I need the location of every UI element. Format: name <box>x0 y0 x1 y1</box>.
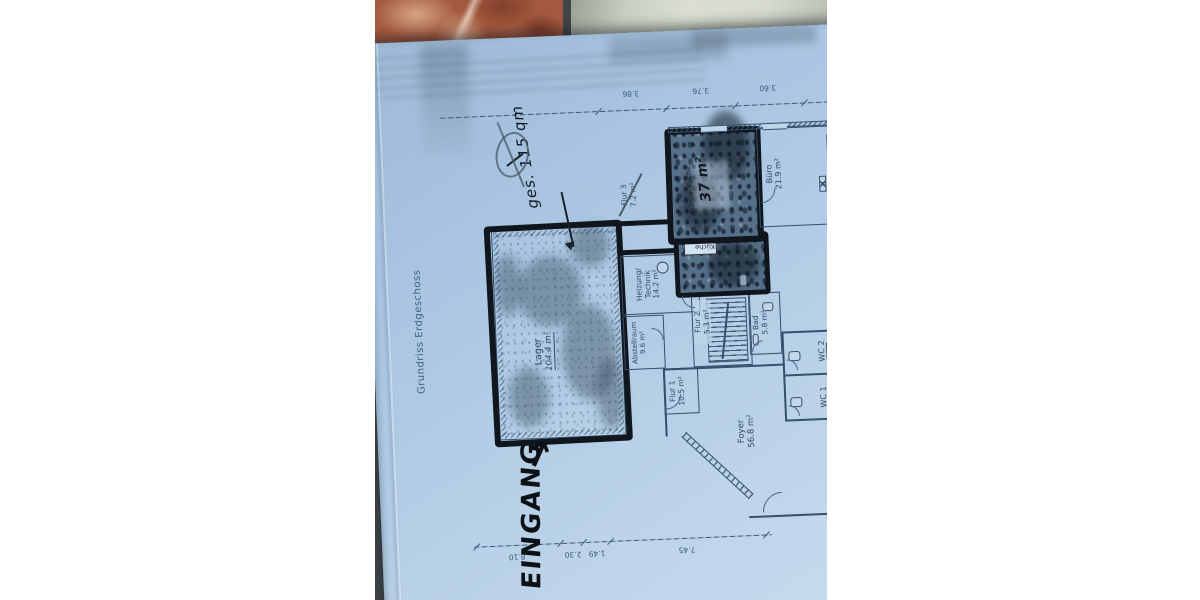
dimension-value: 3.60 <box>755 83 781 93</box>
window-symbol <box>826 134 827 156</box>
photo-of-floor-plan: Grundriss Erdgeschoss 8.10 2.30 1.49 7.4… <box>375 0 827 600</box>
radiator-symbol <box>826 343 827 359</box>
wc-top-wall <box>781 332 787 422</box>
paper-fold-edge <box>376 43 404 600</box>
wc-left-wall <box>785 417 827 421</box>
photocopy-streak <box>609 33 728 64</box>
photocopy-streak <box>691 25 817 48</box>
screenshot-canvas: Grundriss Erdgeschoss 8.10 2.30 1.49 7.4… <box>0 0 1200 600</box>
radiator-symbol <box>819 176 827 192</box>
dimension-value: 1.49 <box>584 549 610 559</box>
dimension-value: 3.76 <box>688 86 714 96</box>
dimension-value: 3.86 <box>618 89 644 99</box>
room-label-abstellraum: Abstellraum 9.6 m² <box>630 317 648 368</box>
room-area: 5.3 m² <box>702 300 712 344</box>
marker-outline-lager <box>484 220 633 448</box>
room-area: 104.4 m² <box>543 332 556 371</box>
toilet-symbol <box>762 302 773 311</box>
dimension-value: 7.45 <box>674 545 700 555</box>
floor-plan-drawing: Grundriss Erdgeschoss 8.10 2.30 1.49 7.4… <box>401 74 827 572</box>
room-label-flur2: Flur 2 5.3 m² <box>693 300 712 345</box>
dimension-chain-right <box>440 101 827 119</box>
floor-plan-paper: Grundriss Erdgeschoss 8.10 2.30 1.49 7.4… <box>375 24 827 600</box>
dimension-value: 2.30 <box>560 550 586 560</box>
room-label-lager: Lager 104.4 m² <box>533 316 557 387</box>
room-area: 10.5 m² <box>677 371 687 411</box>
door-arc-entrance <box>762 492 783 513</box>
plan-title: Grundriss Erdgeschoss <box>411 252 429 412</box>
window-symbol <box>701 125 727 133</box>
foyer-left-wall <box>749 512 827 518</box>
marker-corridor-wall <box>613 219 673 227</box>
room-label-foyer: Foyer 56.8 m² <box>736 399 758 464</box>
room-area: 56.8 m² <box>746 399 758 463</box>
wc-divider-wall <box>785 372 827 376</box>
room-label-wc1: WC 1 <box>818 377 827 417</box>
window-symbol <box>763 122 787 130</box>
marker-outline-buero-kueche <box>664 126 764 245</box>
